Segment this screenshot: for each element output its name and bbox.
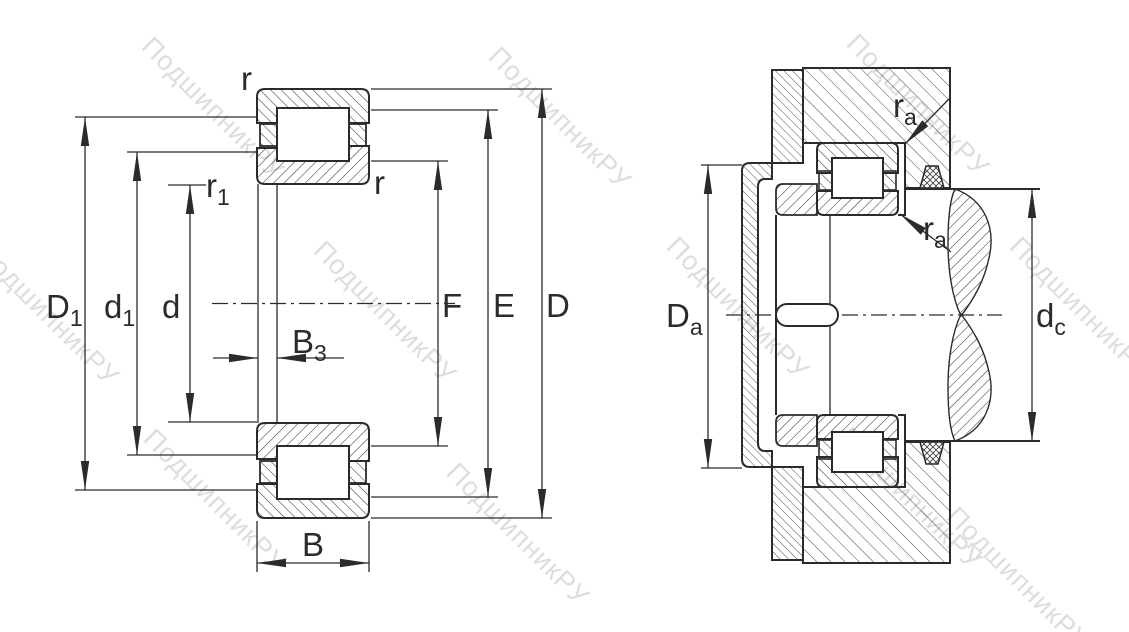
watermark-text: ПодшипникРУ	[1004, 231, 1129, 385]
watermark-text: ПодшипникРУ	[308, 235, 462, 389]
svg-text:Da: Da	[666, 297, 703, 340]
roller-bottom-right-view	[832, 432, 883, 472]
svg-text:d: d	[162, 288, 180, 325]
shaft-break-bottom	[948, 314, 991, 441]
label-r-outer: r	[241, 60, 252, 97]
cage-bottom-right	[349, 461, 366, 483]
svg-text:D1: D1	[46, 288, 83, 331]
cage-top-right-right-view	[883, 171, 896, 190]
label-r-inner: r	[374, 164, 385, 201]
label-r1: r1	[206, 167, 230, 210]
dimension-dc: dc	[1032, 189, 1066, 441]
cage-bottom-left-right-view	[819, 440, 832, 459]
cage-top-left-right-view	[819, 171, 832, 190]
cage-top-left	[260, 124, 277, 146]
svg-text:E: E	[493, 287, 515, 324]
roller-top	[277, 108, 349, 161]
shaft-break-top	[948, 189, 991, 316]
watermark-text: ПодшипникРУ	[483, 41, 637, 195]
svg-text:d1: d1	[104, 288, 135, 331]
loose-rib-bottom	[776, 415, 817, 446]
leader-ra-bottom: ra	[900, 210, 951, 253]
loose-rib-top	[776, 184, 817, 215]
cage-bottom-right-right-view	[883, 440, 896, 459]
bearing-drawing-canvas: ПодшипникРУ ПодшипникРУ ПодшипникРУ Подш…	[0, 0, 1129, 632]
cage-top-right	[349, 124, 366, 146]
cage-bottom-left	[260, 461, 277, 483]
svg-text:F: F	[442, 287, 462, 324]
bearing-drawing-page: ПодшипникРУ ПодшипникРУ ПодшипникРУ Подш…	[0, 0, 1129, 632]
end-cover-flange-top	[772, 70, 803, 163]
svg-text:D: D	[546, 287, 570, 324]
roller-bottom	[277, 446, 349, 499]
roller-top-right-view	[832, 158, 883, 198]
svg-text:B3: B3	[292, 323, 327, 366]
svg-text:ra: ra	[923, 210, 947, 253]
svg-text:B: B	[302, 526, 324, 563]
shaft-center-hole	[776, 304, 838, 326]
dimension-B3: B3	[213, 323, 344, 366]
watermark-text: ПодшипникРУ	[441, 457, 595, 611]
end-cover-flange-bottom	[772, 467, 803, 560]
